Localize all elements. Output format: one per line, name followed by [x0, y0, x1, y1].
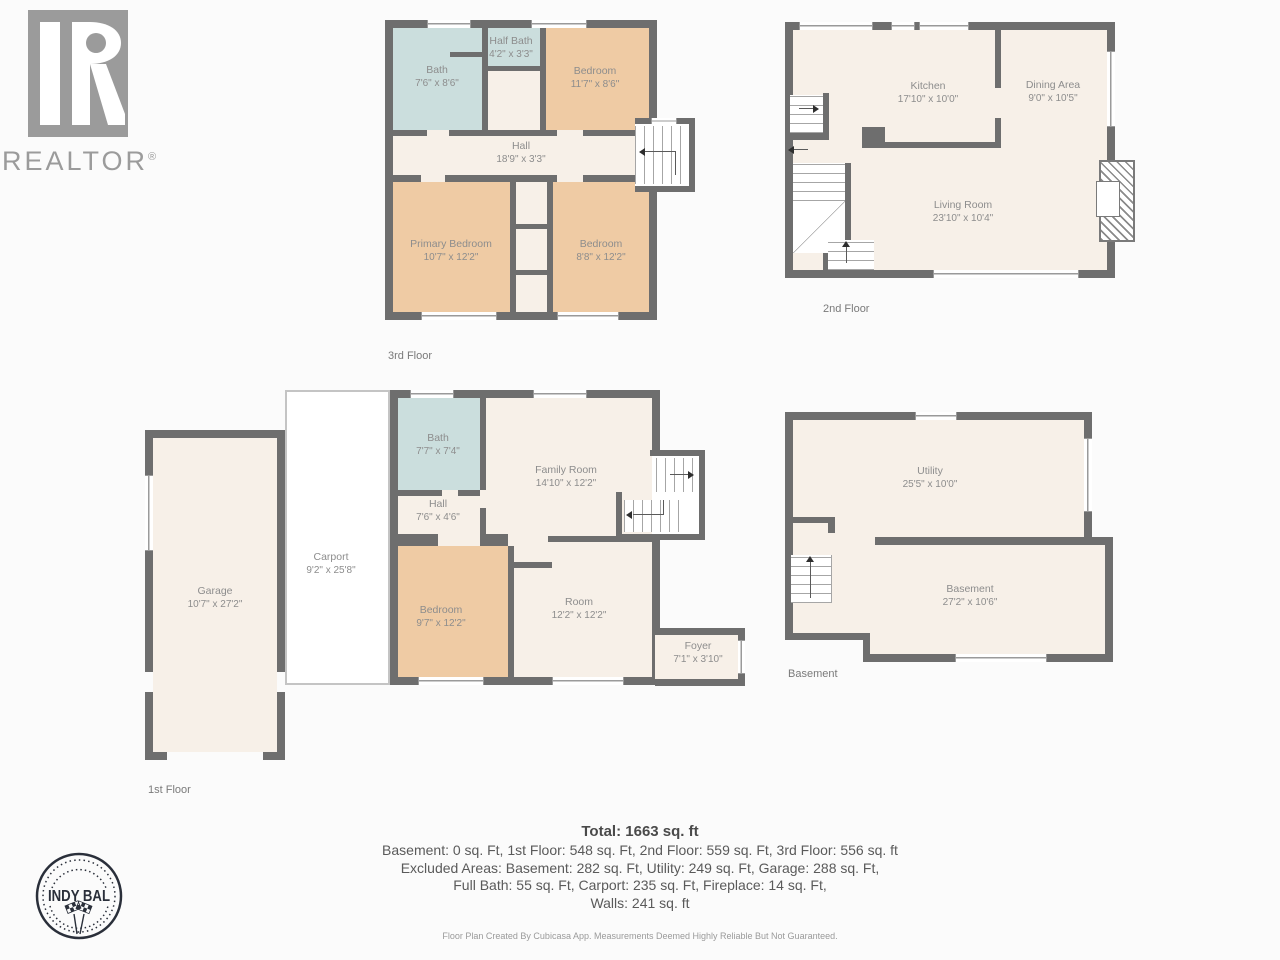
room-label-hall: Hall 18'9" x 3'3" [496, 140, 545, 166]
window-symbol [418, 677, 484, 685]
stair-arrow-line [645, 151, 675, 152]
wall-segment [480, 534, 508, 546]
staircase-symbol [624, 500, 684, 532]
room-dims: 7'1" x 3'10" [673, 653, 722, 666]
room-label-bedroom: Bedroom 9'7" x 12'2" [416, 604, 465, 630]
room-dims: 4'2" x 3'3" [489, 48, 533, 61]
room-label-primary-bedroom: Primary Bedroom 10'7" x 12'2" [410, 238, 492, 264]
staircase-symbol [793, 163, 845, 201]
wall-segment [785, 133, 829, 140]
summary-line: Walls: 241 sq. ft [0, 895, 1280, 913]
room-dims: 7'6" x 8'6" [415, 77, 459, 90]
stair-arrow-line [794, 149, 808, 150]
window-symbol [410, 390, 454, 398]
room-name: Bath [415, 64, 459, 77]
stair-edge-line [831, 555, 832, 603]
summary-total: Total: 1663 sq. ft [0, 822, 1280, 842]
room-label-bedroom: Bedroom 11'7" x 8'6" [571, 65, 620, 91]
window-symbol [145, 475, 153, 551]
floor-plan-page: REALTOR® [0, 0, 1280, 960]
room-dims: 8'8" x 12'2" [576, 251, 625, 264]
room-name: Bedroom [571, 65, 620, 78]
wall-segment [393, 130, 427, 136]
stair-direction-arrow-icon [626, 511, 632, 519]
room-name: Family Room [535, 464, 597, 477]
wall-segment [863, 640, 870, 662]
floor-plan-1st: Garage 10'7" x 27'2" Carport 9'2" x 25'8… [145, 388, 760, 803]
room-dims: 9'7" x 12'2" [416, 617, 465, 630]
stair-direction-arrow-icon [639, 148, 645, 156]
footer-note: Floor Plan Created By Cubicasa App. Meas… [0, 931, 1280, 941]
window-symbol [552, 677, 624, 685]
room-name: Dining Area [1026, 79, 1080, 92]
wall-segment [450, 52, 482, 57]
registered-mark: ® [148, 151, 156, 163]
window-symbol [427, 20, 471, 28]
window-symbol [933, 270, 1079, 278]
room-dims: 9'2" x 25'8" [306, 564, 355, 577]
room-dims: 10'7" x 12'2" [410, 251, 492, 264]
window-symbol [557, 312, 619, 320]
stair-arrow-line [663, 500, 664, 515]
wall-segment [480, 508, 486, 536]
wall-opening [277, 672, 285, 692]
room-dims: 9'0" x 10'5" [1026, 92, 1080, 105]
window-symbol [651, 118, 677, 124]
floor-plan-basement: Utility 25'5" x 10'0" Basement 27'2" x 1… [785, 405, 1130, 695]
room-label-room: Room 12'2" x 12'2" [552, 596, 607, 622]
room-dims: 27'2" x 10'6" [943, 596, 998, 609]
room-label-carport: Carport 9'2" x 25'8" [306, 551, 355, 577]
stair-arrow-line [846, 247, 847, 263]
room-label-basement: Basement 27'2" x 10'6" [943, 583, 998, 609]
room-label-bath: Bath 7'6" x 8'6" [415, 64, 459, 90]
room-dims: 12'2" x 12'2" [552, 609, 607, 622]
floor-label-2nd: 2nd Floor [823, 303, 869, 315]
room-name: Basement [943, 583, 998, 596]
stair-arrow-line [799, 108, 813, 109]
wall-segment [516, 224, 547, 229]
summary-line: Excluded Areas: Basement: 282 sq. Ft, Ut… [0, 860, 1280, 878]
stair-arrow-line [810, 562, 811, 598]
wall-segment [785, 633, 870, 640]
window-symbol [799, 22, 873, 30]
wall-segment [393, 175, 421, 182]
stair-direction-arrow-icon [788, 146, 794, 154]
wall-opening [145, 672, 153, 692]
wall-segment [482, 28, 488, 132]
room-label-utility: Utility 25'5" x 10'0" [903, 465, 958, 491]
realtor-wordmark-text: REALTOR [2, 146, 148, 176]
garage-door-opening [167, 752, 263, 760]
room-name: Foyer [673, 640, 722, 653]
wall-segment [699, 450, 705, 540]
room-name: Carport [306, 551, 355, 564]
room-dims: 7'6" x 4'6" [416, 511, 460, 524]
room-name: Garage [188, 585, 243, 598]
staircase-symbol [828, 240, 874, 270]
window-symbol [531, 20, 587, 28]
room-name: Primary Bedroom [410, 238, 492, 251]
room-dims: 23'10" x 10'4" [933, 212, 993, 225]
room-label-hall: Hall 7'6" x 4'6" [416, 498, 460, 524]
wall-segment [785, 517, 830, 523]
summary-line: Basement: 0 sq. Ft, 1st Floor: 548 sq. F… [0, 842, 1280, 860]
window-symbol [421, 312, 497, 320]
room-label-bath: Bath 7'7" x 7'4" [416, 432, 460, 458]
window-symbol [1107, 51, 1115, 127]
window-symbol [1084, 438, 1092, 512]
fireplace-firebox [1096, 181, 1120, 217]
room-name: Hall [416, 498, 460, 511]
wall-segment [823, 93, 829, 133]
carport-outline [285, 390, 390, 685]
wall-segment [510, 182, 516, 312]
wall-segment [622, 534, 705, 540]
window-symbol [955, 654, 1047, 662]
room-dims: 17'10" x 10'0" [898, 93, 958, 106]
floor-label-basement: Basement [788, 668, 838, 680]
staircase-symbol [635, 118, 695, 192]
stair-direction-arrow-icon [688, 471, 694, 479]
wall-segment [995, 30, 1001, 88]
room-label-foyer: Foyer 7'1" x 3'10" [673, 640, 722, 666]
staircase-symbol [791, 555, 831, 603]
room-name: Bedroom [416, 604, 465, 617]
wall-segment [540, 28, 546, 132]
window-symbol [738, 640, 745, 674]
realtor-logo: REALTOR® [10, 8, 160, 178]
footprint-notch [785, 640, 863, 664]
stair-direction-arrow-icon [813, 105, 819, 113]
room-name: Living Room [933, 199, 993, 212]
kitchen-counter-block [862, 127, 885, 148]
room-label-living: Living Room 23'10" x 10'4" [933, 199, 993, 225]
stair-arrow-line [633, 514, 663, 515]
wall-segment [458, 490, 480, 496]
kitchen-counter [885, 142, 995, 148]
wall-segment [508, 562, 552, 568]
room-dims: 14'10" x 12'2" [535, 477, 597, 490]
room-name: Bath [416, 432, 460, 445]
wall-segment [480, 398, 486, 490]
staircase-symbol [790, 95, 823, 133]
stair-arrow-line [670, 474, 688, 475]
room-label-bedroom2: Bedroom 8'8" x 12'2" [576, 238, 625, 264]
room-name: Kitchen [898, 80, 958, 93]
room-label-garage: Garage 10'7" x 27'2" [188, 585, 243, 611]
area-summary: Total: 1663 sq. ft Basement: 0 sq. Ft, 1… [0, 822, 1280, 912]
wall-segment [616, 492, 622, 540]
stair-arrow-line [675, 151, 676, 175]
room-dims: 11'7" x 8'6" [571, 78, 620, 91]
room-label-dining: Dining Area 9'0" x 10'5" [1026, 79, 1080, 105]
wall-segment [547, 182, 553, 312]
wall-opening [793, 533, 875, 549]
room-dims: 25'5" x 10'0" [903, 478, 958, 491]
room-label-family: Family Room 14'10" x 12'2" [535, 464, 597, 490]
floor-label-1st: 1st Floor [148, 784, 191, 796]
window-symbol [919, 22, 969, 30]
wall-segment [488, 66, 540, 71]
window-symbol [915, 412, 957, 420]
room-name: Hall [496, 140, 545, 153]
realtor-wordmark: REALTOR® [2, 146, 156, 177]
wall-segment [650, 450, 705, 456]
room-dims: 18'9" x 3'3" [496, 153, 545, 166]
window-symbol [891, 22, 915, 30]
summary-line: Full Bath: 55 sq. Ft, Carport: 235 sq. F… [0, 877, 1280, 895]
room-label-kitchen: Kitchen 17'10" x 10'0" [898, 80, 958, 106]
room-dims: 10'7" x 27'2" [188, 598, 243, 611]
wall-segment [398, 534, 438, 546]
room-name: Utility [903, 465, 958, 478]
realtor-r-mark [28, 10, 128, 137]
room-name: Half Bath [489, 35, 533, 48]
room-dims: 7'7" x 7'4" [416, 445, 460, 458]
floor-label-3rd: 3rd Floor [388, 350, 432, 362]
room-label-half-bath: Half Bath 4'2" x 3'3" [489, 35, 533, 61]
floor-plan-3rd: Bath 7'6" x 8'6" Half Bath 4'2" x 3'3" B… [385, 12, 700, 364]
wall-segment [445, 175, 557, 182]
floor-plan-2nd: Kitchen 17'10" x 10'0" Dining Area 9'0" … [785, 15, 1145, 327]
room-name: Room [552, 596, 607, 609]
wall-segment [398, 490, 442, 496]
window-symbol [533, 390, 587, 398]
wall-segment [516, 270, 547, 275]
room-name: Bedroom [576, 238, 625, 251]
wall-segment [995, 118, 1001, 148]
